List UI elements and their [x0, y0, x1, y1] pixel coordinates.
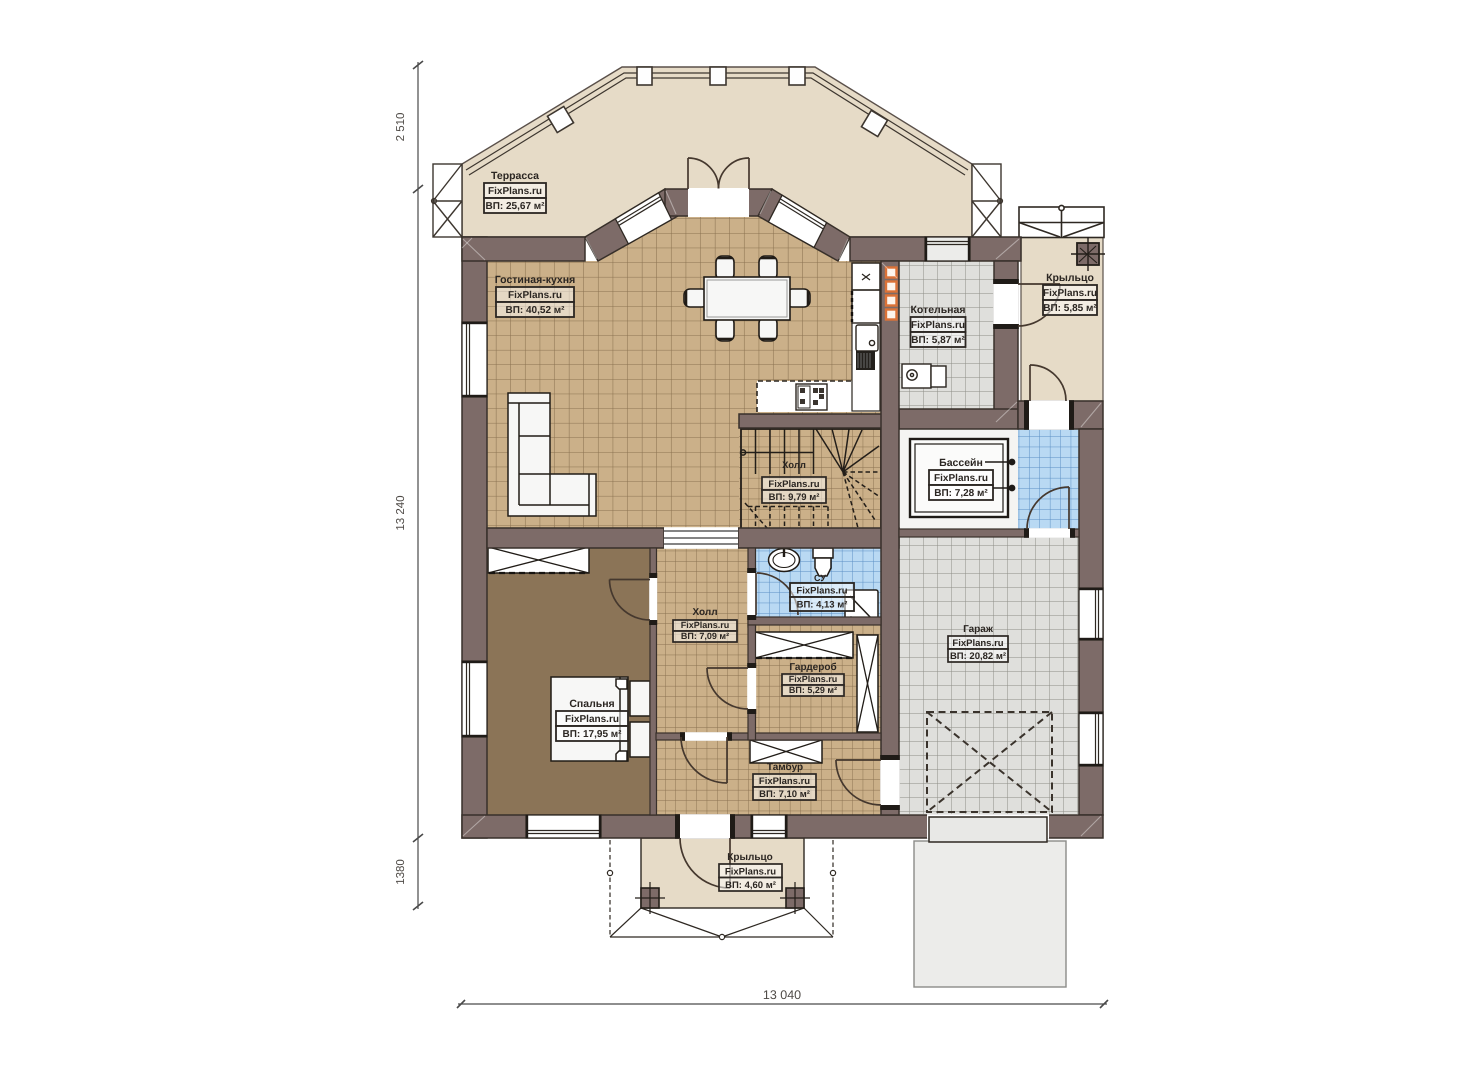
- svg-text:2 510: 2 510: [395, 113, 407, 142]
- svg-text:Крыльцо: Крыльцо: [727, 852, 773, 863]
- svg-text:ВП: 7,09 м²: ВП: 7,09 м²: [681, 631, 729, 641]
- svg-text:13 040: 13 040: [763, 988, 801, 1002]
- svg-text:ВП: 20,82 м²: ВП: 20,82 м²: [950, 651, 1006, 662]
- svg-text:Холл: Холл: [782, 460, 806, 471]
- svg-text:ВП: 5,29 м²: ВП: 5,29 м²: [789, 685, 837, 695]
- svg-text:FixPlans.ru: FixPlans.ru: [911, 320, 965, 331]
- svg-text:ВП: 25,67 м²: ВП: 25,67 м²: [485, 201, 545, 212]
- svg-text:ВП: 5,87 м²: ВП: 5,87 м²: [911, 335, 965, 346]
- svg-text:ВП: 5,85 м²: ВП: 5,85 м²: [1043, 303, 1097, 314]
- svg-text:FixPlans.ru: FixPlans.ru: [1043, 288, 1097, 299]
- svg-text:ВП: 40,52 м²: ВП: 40,52 м²: [505, 305, 565, 316]
- svg-text:ВП: 9,79 м²: ВП: 9,79 м²: [769, 492, 820, 503]
- svg-text:1380: 1380: [395, 859, 407, 885]
- svg-text:FixPlans.ru: FixPlans.ru: [768, 479, 819, 490]
- svg-text:ВП: 7,28 м²: ВП: 7,28 м²: [934, 488, 988, 499]
- svg-text:Гостиная-кухня: Гостиная-кухня: [495, 274, 575, 286]
- svg-text:Крыльцо: Крыльцо: [1046, 272, 1094, 284]
- svg-text:13 240: 13 240: [395, 495, 407, 530]
- svg-text:ВП: 4,13 м²: ВП: 4,13 м²: [797, 600, 848, 611]
- svg-text:FixPlans.ru: FixPlans.ru: [681, 620, 730, 630]
- svg-text:FixPlans.ru: FixPlans.ru: [934, 473, 988, 484]
- svg-text:Спальня: Спальня: [569, 698, 614, 710]
- svg-text:FixPlans.ru: FixPlans.ru: [488, 186, 542, 197]
- svg-text:Террасса: Террасса: [491, 170, 539, 182]
- svg-text:ВП: 7,10 м²: ВП: 7,10 м²: [759, 789, 810, 800]
- svg-text:ВП: 4,60 м²: ВП: 4,60 м²: [725, 880, 776, 891]
- svg-text:ВП: 17,95 м²: ВП: 17,95 м²: [562, 729, 622, 740]
- svg-text:FixPlans.ru: FixPlans.ru: [789, 674, 838, 684]
- svg-text:FixPlans.ru: FixPlans.ru: [759, 776, 810, 787]
- svg-text:Холл: Холл: [692, 607, 717, 618]
- svg-text:FixPlans.ru: FixPlans.ru: [565, 714, 619, 725]
- svg-text:СУ: СУ: [814, 573, 826, 583]
- svg-text:Котельная: Котельная: [911, 304, 966, 316]
- svg-text:FixPlans.ru: FixPlans.ru: [796, 586, 847, 597]
- svg-text:FixPlans.ru: FixPlans.ru: [508, 290, 562, 301]
- svg-text:Гараж: Гараж: [963, 624, 994, 635]
- svg-text:FixPlans.ru: FixPlans.ru: [725, 867, 776, 878]
- svg-text:Бассейн: Бассейн: [939, 457, 983, 469]
- svg-text:Гардероб: Гардероб: [789, 662, 836, 673]
- svg-text:FixPlans.ru: FixPlans.ru: [952, 638, 1003, 649]
- svg-text:Тамбур: Тамбур: [767, 762, 803, 773]
